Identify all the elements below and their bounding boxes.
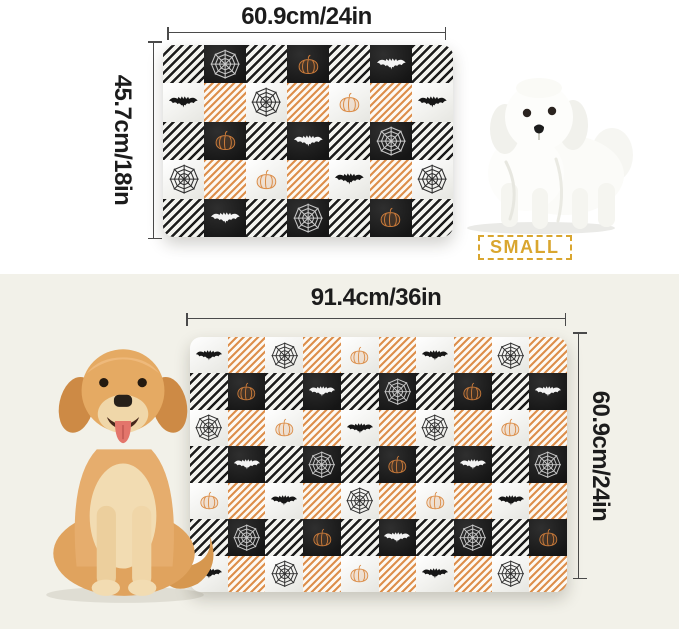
plaid-tile-stripe-orange	[303, 337, 341, 373]
medium-width-dimension-line	[187, 318, 565, 319]
maltese-dog-photo	[446, 66, 636, 238]
plaid-tile-stripe-black	[329, 122, 370, 160]
pumpkin-icon	[378, 207, 403, 228]
plaid-tile-stripe-orange	[379, 556, 417, 592]
spider-web-icon	[345, 486, 374, 515]
plaid-tile-white-pumpkin	[265, 410, 303, 446]
bat-icon	[346, 422, 374, 435]
plaid-tile-white-pumpkin	[246, 160, 287, 198]
plaid-tile-stripe-black	[492, 373, 530, 409]
bat-icon	[376, 57, 407, 71]
plaid-tile-stripe-black	[265, 446, 303, 482]
medium-height-label: 60.9cm/24in	[586, 391, 614, 522]
small-width-dimension-line	[168, 32, 445, 33]
plaid-tile-stripe-orange	[529, 337, 567, 373]
plaid-tile-white-bat	[329, 160, 370, 198]
plaid-tile-white-pumpkin	[492, 410, 530, 446]
plaid-tile-stripe-black	[492, 446, 530, 482]
plaid-tile-black-bat	[379, 519, 417, 555]
plaid-tile-black-bat	[454, 446, 492, 482]
plaid-tile-white-pumpkin	[416, 483, 454, 519]
plaid-tile-stripe-black	[341, 373, 379, 409]
spider-web-icon	[270, 559, 299, 588]
pet-mat-size-chart: 60.9cm/24in 45.7cm/18in	[0, 0, 679, 629]
bat-icon	[534, 385, 562, 398]
bat-icon	[233, 458, 261, 471]
plaid-tile-stripe-orange	[228, 337, 266, 373]
golden-retriever-photo	[26, 328, 218, 606]
dog-eye	[523, 109, 531, 117]
plaid-tile-stripe-orange	[287, 83, 328, 121]
dog-eye	[138, 378, 147, 387]
pumpkin-icon	[311, 528, 334, 547]
medium-width-label: 91.4cm/36in	[187, 284, 565, 312]
plaid-tile-white-web	[246, 83, 287, 121]
plaid-tile-stripe-black	[163, 122, 204, 160]
plaid-tile-white-web	[492, 556, 530, 592]
pumpkin-icon	[461, 382, 484, 401]
plaid-tile-stripe-orange	[454, 556, 492, 592]
dog-nose	[114, 395, 132, 407]
plaid-tile-stripe-orange	[303, 410, 341, 446]
plaid-tile-stripe-orange	[370, 83, 411, 121]
plaid-tile-stripe-black	[416, 519, 454, 555]
pumpkin-icon	[424, 491, 447, 510]
plaid-tile-stripe-black	[265, 373, 303, 409]
dog-eye	[99, 378, 108, 387]
spider-web-icon	[168, 163, 200, 195]
plaid-tile-stripe-orange	[379, 337, 417, 373]
plaid-tile-white-web	[416, 410, 454, 446]
plaid-tile-stripe-black	[416, 373, 454, 409]
plaid-tile-stripe-orange	[529, 410, 567, 446]
dog-eye	[548, 107, 556, 115]
spider-web-icon	[307, 450, 336, 479]
pumpkin-icon	[213, 130, 238, 151]
plaid-tile-black-pumpkin	[204, 122, 245, 160]
plaid-tile-stripe-orange	[454, 483, 492, 519]
plaid-tile-white-web	[265, 556, 303, 592]
small-height-dimension-line	[153, 42, 154, 238]
pumpkin-icon	[537, 528, 560, 547]
plaid-tile-white-pumpkin	[329, 83, 370, 121]
pumpkin-icon	[235, 382, 258, 401]
spider-web-icon	[533, 450, 562, 479]
plaid-tile-white-bat	[492, 483, 530, 519]
plaid-tile-stripe-black	[265, 519, 303, 555]
plaid-tile-white-pumpkin	[341, 337, 379, 373]
bat-icon	[417, 95, 448, 109]
pumpkin-icon	[296, 54, 321, 75]
plaid-tile-black-pumpkin	[228, 373, 266, 409]
plaid-tile-black-bat	[287, 122, 328, 160]
plaid-tile-white-bat	[416, 337, 454, 373]
plaid-tile-black-pumpkin	[287, 45, 328, 83]
plaid-tile-white-web	[341, 483, 379, 519]
plaid-tile-stripe-black	[246, 122, 287, 160]
plaid-tile-black-web	[287, 199, 328, 237]
spider-web-icon	[496, 341, 525, 370]
bat-icon	[383, 531, 411, 544]
pumpkin-icon	[273, 418, 296, 437]
plaid-tile-stripe-orange	[379, 483, 417, 519]
bat-icon	[308, 385, 336, 398]
bat-icon	[421, 349, 449, 362]
medium-pet-mat	[190, 337, 567, 592]
plaid-tile-black-pumpkin	[529, 519, 567, 555]
bat-icon	[459, 458, 487, 471]
small-width-label: 60.9cm/24in	[168, 3, 445, 31]
plaid-tile-stripe-orange	[454, 410, 492, 446]
plaid-tile-stripe-black	[492, 519, 530, 555]
plaid-tile-stripe-black	[341, 446, 379, 482]
plaid-tile-stripe-orange	[529, 483, 567, 519]
plaid-tile-black-pumpkin	[303, 519, 341, 555]
pumpkin-icon	[499, 418, 522, 437]
plaid-tile-stripe-orange	[454, 337, 492, 373]
plaid-tile-white-bat	[341, 410, 379, 446]
plaid-tile-black-bat	[303, 373, 341, 409]
plaid-tile-stripe-orange	[379, 410, 417, 446]
spider-web-icon	[383, 377, 412, 406]
pumpkin-icon	[337, 92, 362, 113]
pumpkin-icon	[386, 455, 409, 474]
dog-leg	[132, 506, 151, 587]
plaid-tile-stripe-black	[329, 199, 370, 237]
bat-icon	[168, 95, 199, 109]
spider-web-icon	[420, 413, 449, 442]
plaid-tile-white-pumpkin	[341, 556, 379, 592]
plaid-tile-white-bat	[163, 83, 204, 121]
plaid-tile-stripe-orange	[204, 160, 245, 198]
plaid-tile-white-web	[492, 337, 530, 373]
spider-web-icon	[496, 559, 525, 588]
plaid-tile-stripe-orange	[287, 160, 328, 198]
plaid-tile-stripe-black	[246, 199, 287, 237]
pumpkin-icon	[254, 169, 279, 190]
plaid-tile-stripe-orange	[529, 556, 567, 592]
spider-web-icon	[375, 125, 407, 157]
plaid-tile-black-bat	[228, 446, 266, 482]
plaid-tile-stripe-orange	[303, 483, 341, 519]
plaid-tile-stripe-black	[163, 45, 204, 83]
small-size-badge: SMALL	[478, 235, 572, 260]
plaid-tile-black-bat	[529, 373, 567, 409]
small-pet-mat	[163, 45, 453, 237]
bat-icon	[293, 134, 324, 148]
plaid-tile-stripe-orange	[228, 556, 266, 592]
plaid-tile-black-pumpkin	[370, 199, 411, 237]
plaid-tile-stripe-orange	[228, 483, 266, 519]
spider-web-icon	[232, 523, 261, 552]
bat-icon	[210, 211, 241, 225]
medium-height-dimension-line	[578, 333, 579, 578]
spider-web-icon	[250, 86, 282, 118]
plaid-tile-white-web	[163, 160, 204, 198]
spider-web-icon	[292, 202, 324, 234]
bat-icon	[421, 567, 449, 580]
plaid-tile-black-pumpkin	[379, 446, 417, 482]
plaid-tile-stripe-orange	[228, 410, 266, 446]
plaid-tile-stripe-black	[416, 446, 454, 482]
bat-icon	[497, 494, 525, 507]
plaid-tile-black-web	[303, 446, 341, 482]
plaid-tile-black-web	[204, 45, 245, 83]
plaid-tile-stripe-orange	[370, 160, 411, 198]
plaid-tile-stripe-black	[329, 45, 370, 83]
plaid-tile-black-bat	[204, 199, 245, 237]
plaid-tile-white-bat	[416, 556, 454, 592]
plaid-tile-black-web	[370, 122, 411, 160]
spider-web-icon	[416, 163, 448, 195]
bat-icon	[270, 494, 298, 507]
dog-leg	[97, 506, 116, 587]
plaid-tile-stripe-black	[341, 519, 379, 555]
spider-web-icon	[209, 48, 241, 80]
plaid-tile-white-web	[265, 337, 303, 373]
pumpkin-icon	[348, 564, 371, 583]
pumpkin-icon	[348, 346, 371, 365]
plaid-tile-black-web	[379, 373, 417, 409]
plaid-tile-stripe-black	[246, 45, 287, 83]
plaid-tile-stripe-black	[163, 199, 204, 237]
bat-icon	[334, 172, 365, 186]
small-height-label: 45.7cm/18in	[108, 75, 136, 206]
plaid-tile-stripe-orange	[204, 83, 245, 121]
plaid-tile-black-bat	[370, 45, 411, 83]
spider-web-icon	[270, 341, 299, 370]
plaid-tile-black-web	[529, 446, 567, 482]
plaid-tile-stripe-orange	[303, 556, 341, 592]
spider-web-icon	[458, 523, 487, 552]
plaid-tile-black-pumpkin	[454, 373, 492, 409]
plaid-tile-black-web	[228, 519, 266, 555]
plaid-tile-white-bat	[265, 483, 303, 519]
plaid-tile-black-web	[454, 519, 492, 555]
